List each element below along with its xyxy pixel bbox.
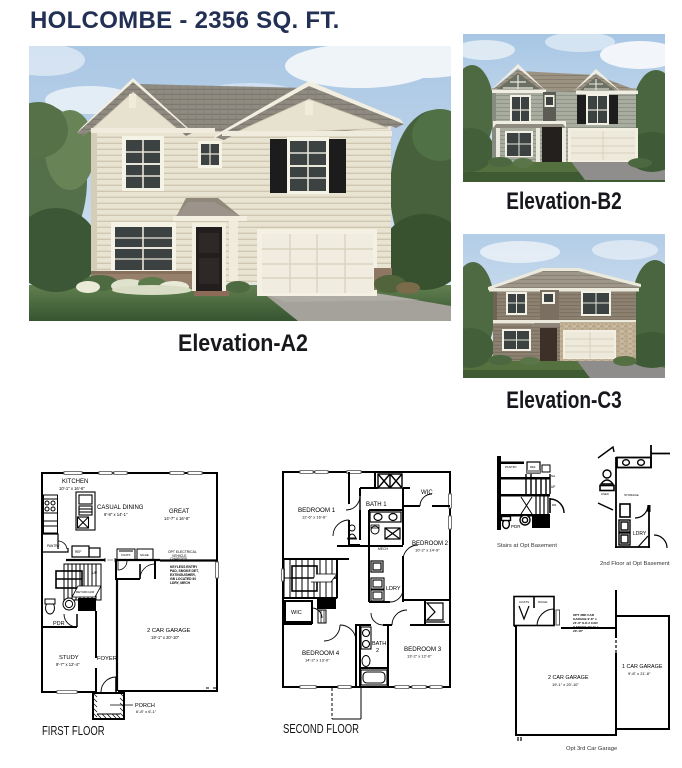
svg-text:LDRY: LDRY: [633, 531, 647, 537]
svg-text:CASUAL DINING: CASUAL DINING: [97, 505, 144, 511]
svg-text:9'-8" x 21'-8": 9'-8" x 21'-8": [628, 671, 651, 676]
svg-text:REF: REF: [530, 465, 536, 469]
svg-text:KITCHEN: KITCHEN: [62, 479, 88, 485]
svg-text:PANTRY: PANTRY: [505, 465, 517, 469]
svg-text:8'-8" x 14'-1": 8'-8" x 14'-1": [104, 512, 128, 517]
svg-text:20'-10": 20'-10": [573, 629, 584, 633]
svg-text:COATS: COATS: [121, 553, 131, 557]
svg-text:14'-2" x 13'-0": 14'-2" x 13'-0": [305, 658, 330, 663]
svg-text:PANTRY: PANTRY: [47, 544, 61, 548]
svg-text:WIC: WIC: [291, 610, 302, 616]
svg-text:13'-2" x 12'-0": 13'-2" x 12'-0": [407, 654, 432, 659]
svg-text:BEDROOM 3: BEDROOM 3: [404, 646, 442, 653]
svg-text:LDRY, MECH: LDRY, MECH: [170, 581, 191, 585]
svg-text:MECH: MECH: [378, 547, 389, 551]
svg-text:6'-8" x 6'-1": 6'-8" x 6'-1": [136, 709, 157, 714]
svg-text:REF: REF: [75, 550, 81, 554]
svg-text:PDR: PDR: [511, 524, 521, 529]
svg-text:STUDY: STUDY: [59, 655, 79, 661]
svg-text:BATH 1: BATH 1: [366, 502, 387, 508]
svg-text:PDR: PDR: [53, 621, 65, 627]
svg-text:BEDROOM 1: BEDROOM 1: [298, 507, 336, 514]
svg-text:BATH: BATH: [372, 641, 386, 647]
svg-text:UP: UP: [92, 571, 98, 575]
svg-text:10'-2" x 14'-9": 10'-2" x 14'-9": [415, 548, 440, 553]
svg-text:BEDROOM 2: BEDROOM 2: [412, 541, 449, 547]
svg-text:9'-7" x 12'-4": 9'-7" x 12'-4": [56, 662, 80, 667]
svg-text:2 CAR GARAGE: 2 CAR GARAGE: [548, 675, 589, 681]
svg-text:14'-7" x 16'-8": 14'-7" x 16'-8": [164, 516, 190, 521]
svg-text:10'-1" x 16'-6": 10'-1" x 16'-6": [59, 486, 85, 491]
svg-text:NICHE: NICHE: [140, 553, 149, 557]
svg-text:19'-1" x 20'-10": 19'-1" x 20'-10": [151, 635, 180, 640]
svg-text:DR: DR: [552, 503, 557, 507]
svg-text:2: 2: [376, 648, 379, 654]
svg-text:LDRY: LDRY: [386, 586, 401, 592]
svg-text:12'-6" x 16'-6": 12'-6" x 16'-6": [302, 515, 327, 520]
svg-text:LINEN: LINEN: [601, 492, 609, 496]
svg-text:FOYER: FOYER: [97, 656, 117, 662]
svg-text:BEDROOM 4: BEDROOM 4: [302, 650, 340, 657]
svg-text:RETURN AIR: RETURN AIR: [76, 590, 95, 594]
svg-text:1 CAR GARAGE: 1 CAR GARAGE: [622, 664, 663, 670]
svg-text:NG: NG: [551, 474, 555, 478]
svg-text:19'-1" x 20'-10": 19'-1" x 20'-10": [552, 682, 579, 687]
svg-text:NICHE: NICHE: [538, 600, 547, 604]
svg-text:UP: UP: [551, 485, 555, 489]
svg-text:CHARGER: CHARGER: [170, 557, 188, 561]
svg-text:COATS: COATS: [519, 600, 529, 604]
svg-text:GREAT: GREAT: [169, 509, 190, 515]
svg-text:STORAGE: STORAGE: [624, 493, 639, 497]
svg-text:2 CAR GARAGE: 2 CAR GARAGE: [147, 628, 191, 634]
